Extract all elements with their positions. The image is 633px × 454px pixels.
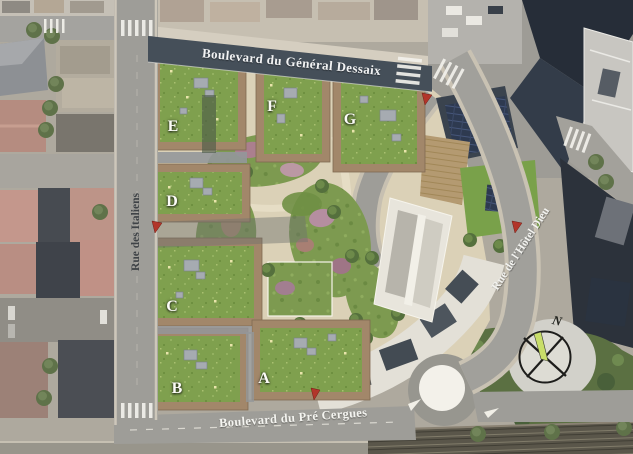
roundabout-center — [419, 365, 465, 411]
building-c-green-roof — [158, 246, 254, 318]
road-rue-des-italiens — [114, 0, 158, 428]
building-f-green-roof — [264, 70, 322, 154]
building-c — [150, 238, 262, 326]
site-plan-image: Boulevard du Général Dessaix Rue des Ita… — [0, 0, 633, 454]
building-d — [150, 164, 250, 222]
site-plan-graphics — [0, 0, 633, 454]
road-east-connector — [472, 390, 633, 422]
building-b — [148, 328, 248, 410]
building-a-green-roof — [260, 328, 362, 392]
surroundings-left — [0, 0, 118, 418]
